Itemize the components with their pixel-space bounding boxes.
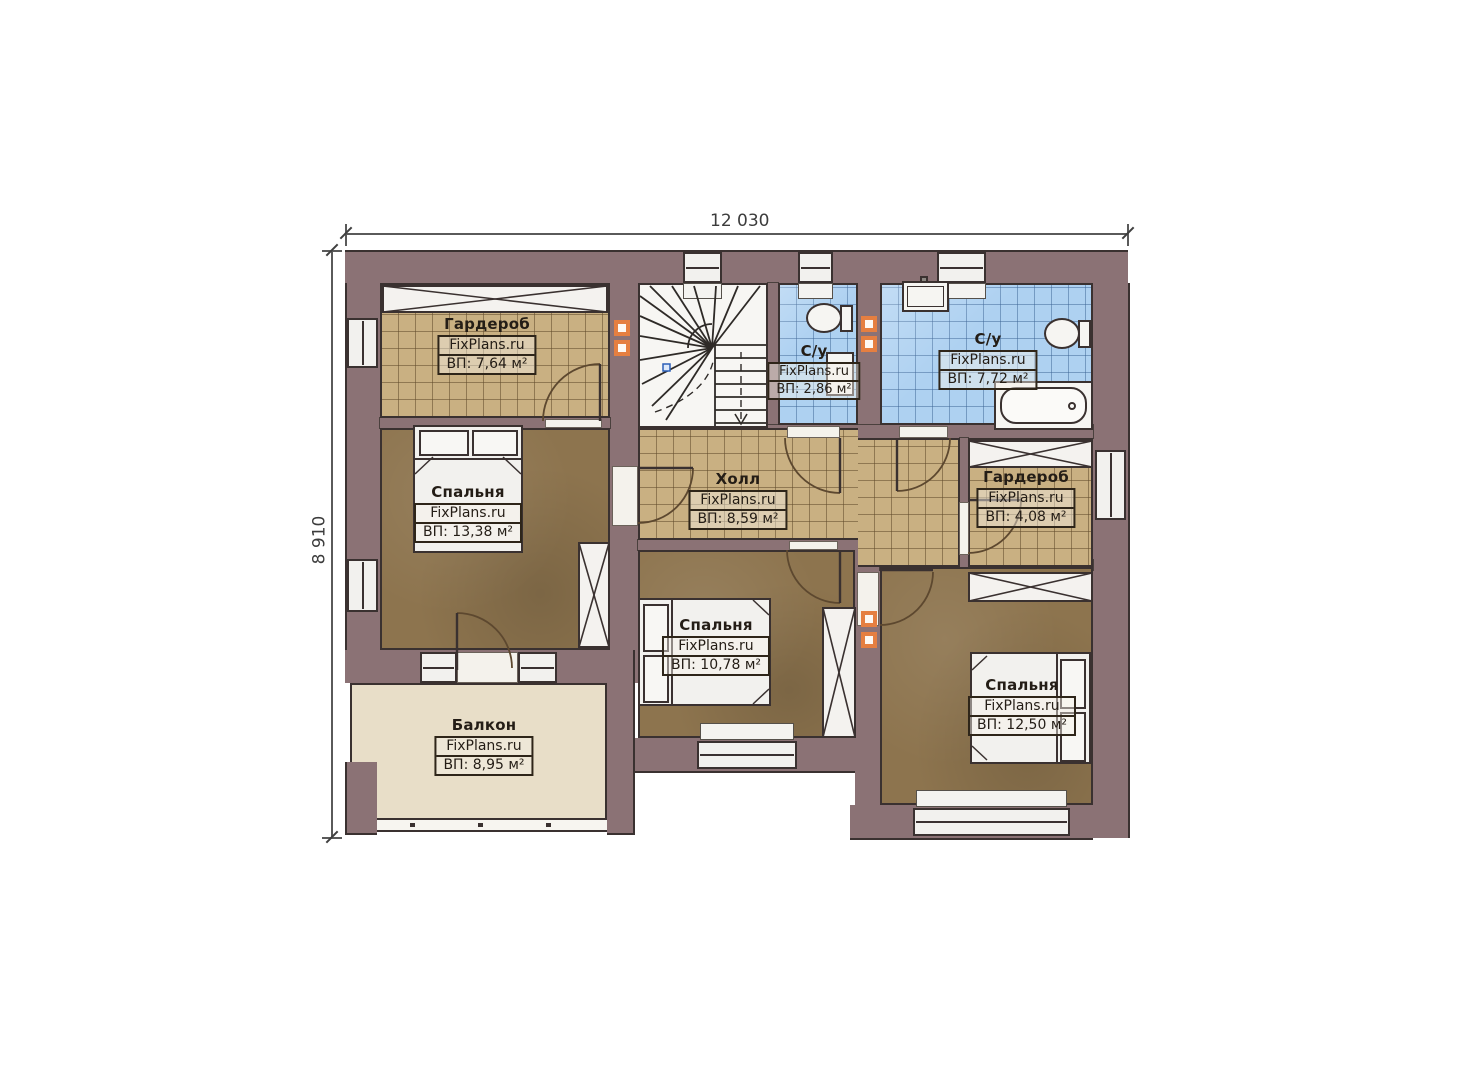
room-name: Спальня — [414, 483, 522, 501]
watermark-text: FixPlans.ru — [690, 492, 785, 511]
room-info-box: FixPlans.ru ВП: 8,59 м² — [688, 490, 787, 530]
room-label-wardrobe-right: Гардероб FixPlans.ru ВП: 4,08 м² — [976, 468, 1075, 528]
window-left-bedroom — [347, 559, 378, 612]
window-top-bathroom-small — [798, 252, 833, 283]
door-opening-bathroom-small — [787, 426, 840, 438]
room-area: ВП: 8,95 м² — [436, 757, 531, 774]
floor-plan-canvas: Гардероб FixPlans.ru ВП: 7,64 м² С/у Fix… — [0, 0, 1473, 1080]
room-name: Балкон — [434, 716, 533, 734]
door-opening-wardrobe-top-left — [545, 419, 602, 428]
room-name: Спальня — [968, 676, 1076, 694]
room-area: ВП: 2,86 м² — [769, 382, 858, 398]
window-sill — [700, 723, 794, 740]
wall-exterior-top — [345, 250, 1128, 285]
room-info-box: FixPlans.ru ВП: 10,78 м² — [662, 636, 770, 676]
window-balcony-right — [518, 652, 557, 683]
dimension-height-label: 8 910 — [309, 516, 329, 565]
closet-bedroom-middle — [822, 607, 856, 738]
room-info-box: FixPlans.ru ВП: 12,50 м² — [968, 696, 1076, 736]
room-info-box: FixPlans.ru ВП: 7,64 м² — [437, 335, 536, 375]
window-top-stairs — [683, 252, 722, 283]
room-area: ВП: 4,08 м² — [978, 509, 1073, 526]
pillow — [472, 430, 518, 456]
vent-shaft — [861, 611, 877, 627]
floor-corridor — [858, 438, 960, 567]
room-info-box: FixPlans.ru ВП: 8,95 м² — [434, 736, 533, 776]
balcony-railing — [350, 818, 607, 832]
room-area: ВП: 12,50 м² — [970, 717, 1074, 734]
room-label-balcony: Балкон FixPlans.ru ВП: 8,95 м² — [434, 716, 533, 776]
window-balcony-left — [420, 652, 457, 683]
bathtub-drain — [1068, 402, 1076, 410]
railing-post — [546, 823, 551, 827]
wall-balcony-right — [607, 650, 635, 835]
wall-balcony-left-pier — [345, 762, 377, 835]
room-info-box: FixPlans.ru ВП: 4,08 м² — [976, 488, 1075, 528]
watermark-text: FixPlans.ru — [978, 490, 1073, 509]
window-left-wardrobe — [347, 318, 378, 368]
window-bottom-bedroom-right — [913, 808, 1070, 836]
door-opening-wardrobe-right — [959, 502, 969, 555]
watermark-text: FixPlans.ru — [416, 505, 520, 524]
balcony-door-opening — [457, 652, 518, 683]
watermark-text: FixPlans.ru — [970, 698, 1074, 717]
room-area: ВП: 10,78 м² — [664, 657, 768, 674]
room-label-bathroom-small: С/у FixPlans.ru ВП: 2,86 м² — [767, 342, 860, 400]
dimension-line-top — [345, 233, 1128, 235]
closet-wardrobe-right-top — [968, 440, 1093, 468]
room-info-box: FixPlans.ru ВП: 7,72 м² — [938, 350, 1037, 390]
toilet-icon — [806, 303, 842, 333]
room-name: Спальня — [662, 616, 770, 634]
vent-shaft — [614, 340, 630, 356]
wall-exterior-right — [1093, 283, 1130, 838]
vent-shaft — [861, 632, 877, 648]
room-label-bedroom-middle: Спальня FixPlans.ru ВП: 10,78 м² — [662, 616, 770, 676]
room-label-bathroom-large: С/у FixPlans.ru ВП: 7,72 м² — [938, 330, 1037, 390]
room-name: С/у — [938, 330, 1037, 348]
window-right-wardrobe — [1095, 450, 1126, 520]
vent-shaft — [614, 320, 630, 336]
window-sill — [916, 790, 1067, 807]
vent-shaft — [861, 316, 877, 332]
railing-post — [478, 823, 483, 827]
window-sill — [683, 283, 722, 299]
closet-bedroom-right — [968, 572, 1093, 602]
pillow — [419, 430, 469, 456]
room-info-box: FixPlans.ru ВП: 13,38 м² — [414, 503, 522, 543]
room-area: ВП: 8,59 м² — [690, 511, 785, 528]
room-name: Холл — [688, 470, 787, 488]
railing-post — [410, 823, 415, 827]
watermark-text: FixPlans.ru — [436, 738, 531, 757]
room-name: Гардероб — [976, 468, 1075, 486]
closet-wardrobe-top-left — [382, 285, 608, 313]
room-area: ВП: 13,38 м² — [416, 524, 520, 541]
room-label-wardrobe-top-left: Гардероб FixPlans.ru ВП: 7,64 м² — [437, 315, 536, 375]
window-sill — [798, 283, 833, 299]
door-opening-bathroom-large — [899, 426, 948, 438]
room-label-bedroom-right: Спальня FixPlans.ru ВП: 12,50 м² — [968, 676, 1076, 736]
wall-between-bathrooms — [858, 283, 880, 438]
door-opening-bedroom-middle — [789, 541, 838, 550]
door-opening-hall-bedroom-left — [612, 466, 638, 526]
room-name: Гардероб — [437, 315, 536, 333]
floor-stairwell — [638, 283, 768, 428]
watermark-text: FixPlans.ru — [940, 352, 1035, 371]
window-top-bathroom-large — [937, 252, 986, 283]
sink-icon — [902, 281, 949, 312]
room-area: ВП: 7,72 м² — [940, 371, 1035, 388]
room-label-hall: Холл FixPlans.ru ВП: 8,59 м² — [688, 470, 787, 530]
room-area: ВП: 7,64 м² — [439, 356, 534, 373]
watermark-text: FixPlans.ru — [439, 337, 534, 356]
watermark-text: FixPlans.ru — [664, 638, 768, 657]
room-name: С/у — [767, 342, 860, 360]
room-label-bedroom-left: Спальня FixPlans.ru ВП: 13,38 м² — [414, 483, 522, 543]
closet-bedroom-left — [578, 542, 610, 648]
dimension-line-left — [331, 250, 333, 838]
toilet-icon — [1044, 318, 1080, 349]
vent-shaft — [861, 336, 877, 352]
watermark-text: FixPlans.ru — [769, 364, 858, 382]
dimension-width-label: 12 030 — [710, 211, 769, 231]
window-bottom-bedroom-middle — [697, 741, 797, 769]
room-info-box: FixPlans.ru ВП: 2,86 м² — [767, 362, 860, 400]
